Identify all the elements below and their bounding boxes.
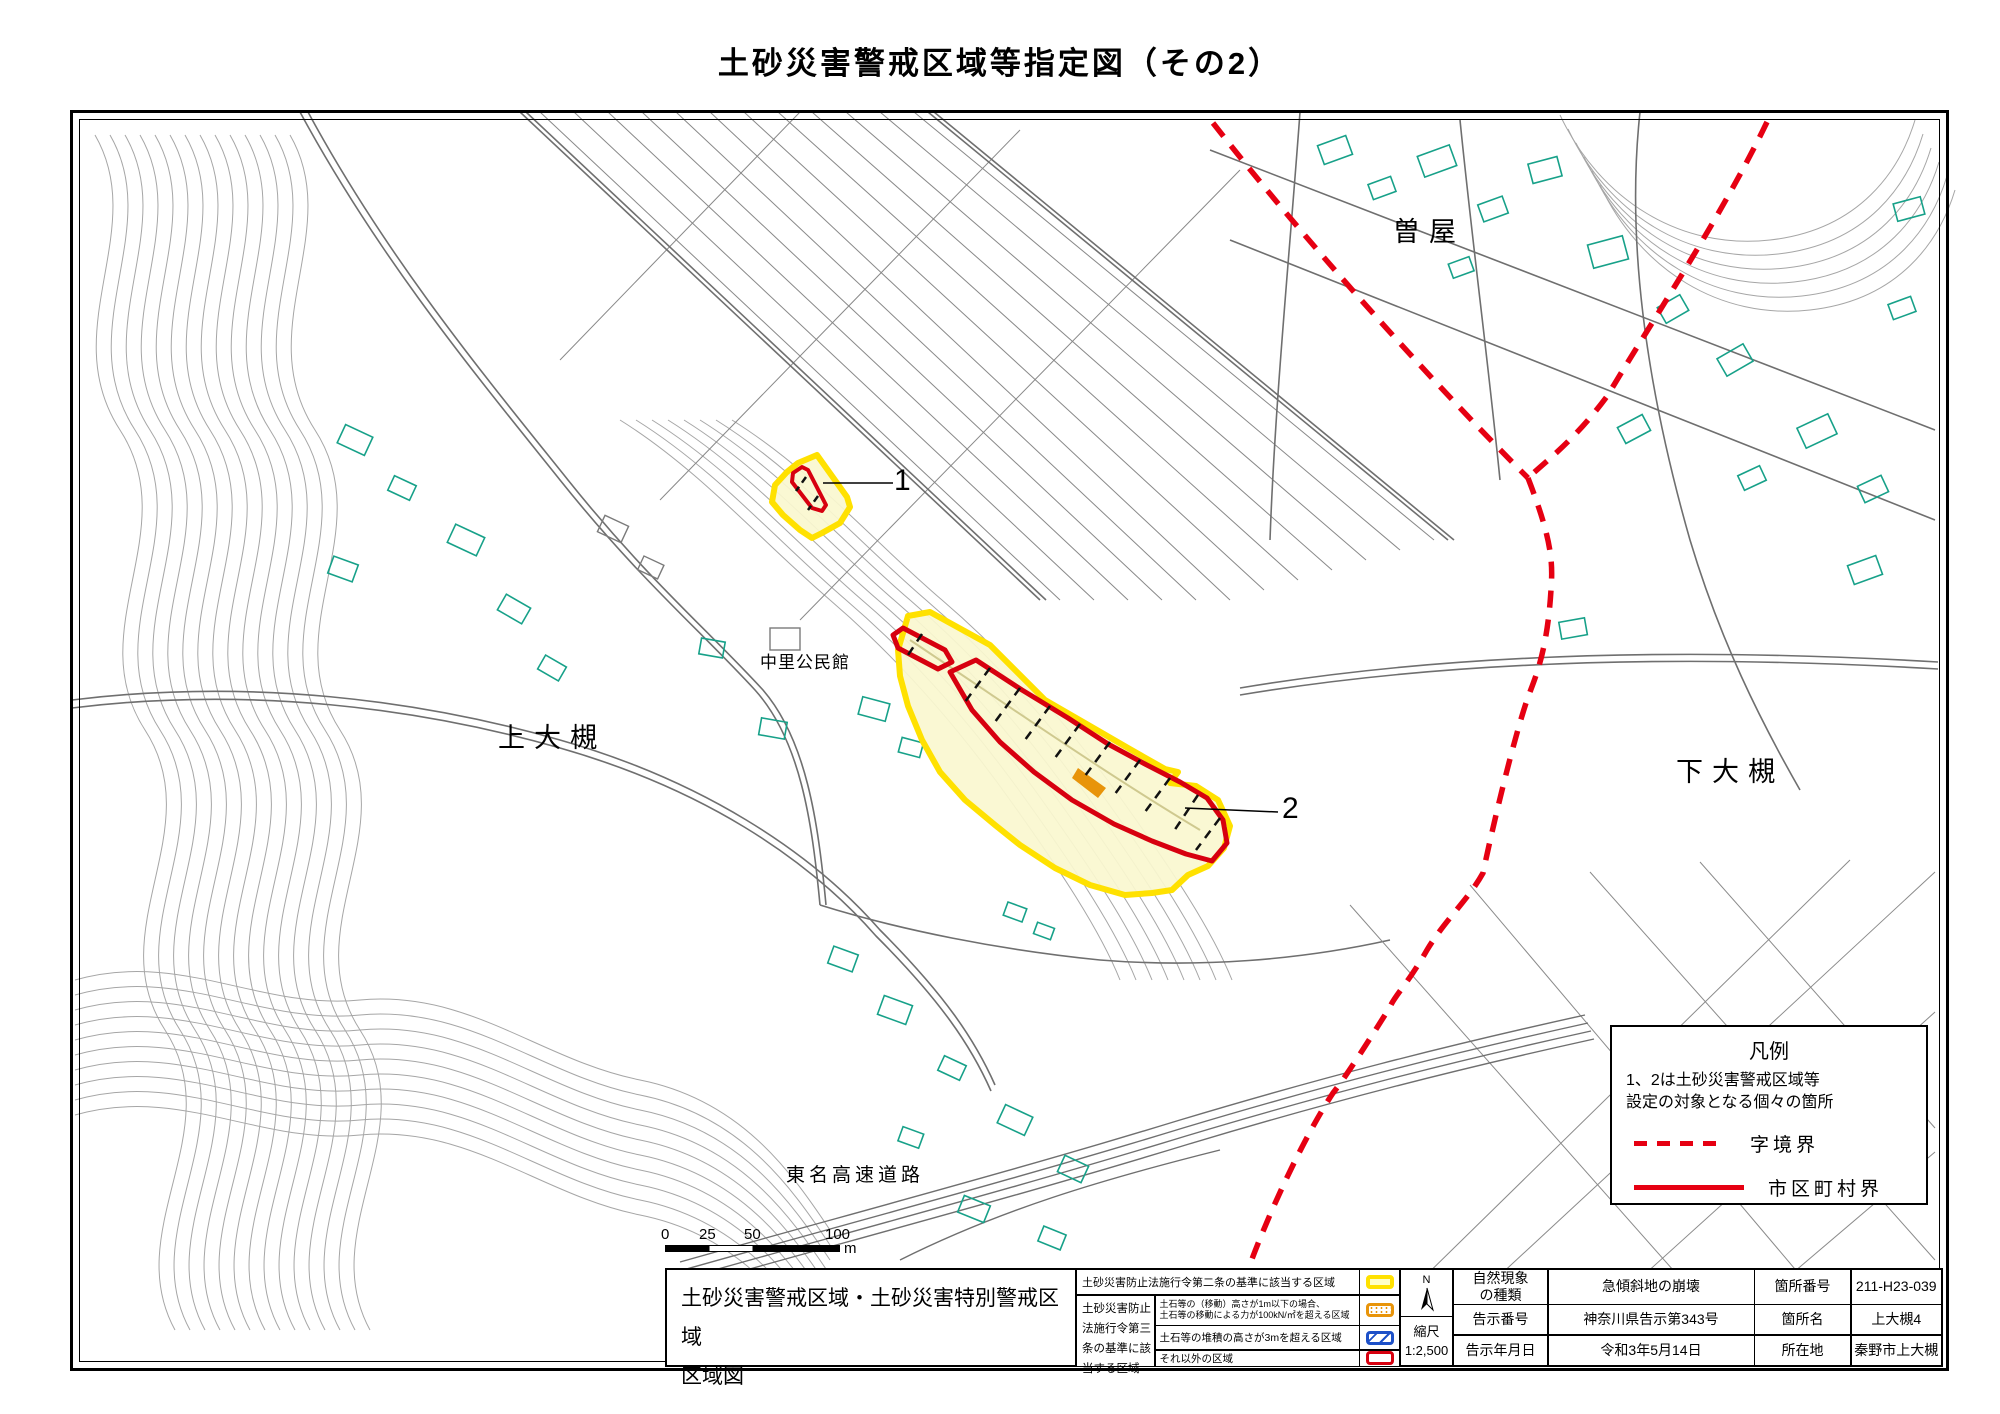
scale-bar-rule	[665, 1245, 840, 1252]
scale-tick-25: 25	[699, 1226, 716, 1243]
red-outline-swatch	[1366, 1351, 1394, 1365]
scale-unit: m	[844, 1240, 857, 1257]
legend-row2-label: 土石等の（移動）高さが1m以下の場合、 土石等の移動による力が100kN/㎡を超…	[1156, 1296, 1359, 1325]
legend-row3-label: 土石等の堆積の高さが3mを超える区域	[1156, 1326, 1359, 1349]
meta-site-name-value: 上大槻4	[1852, 1305, 1942, 1334]
page-title: 土砂災害警戒区域等指定図（その2）	[0, 38, 2000, 83]
solid-boundary-label: 市区町村界	[1768, 1174, 1883, 1201]
north-label: N	[1423, 1275, 1431, 1286]
meta-site-name-label: 箇所名	[1755, 1305, 1850, 1334]
scale-tick-50: 50	[744, 1226, 761, 1243]
scale-tick-0: 0	[661, 1226, 669, 1243]
legend-row4-swatch-cell	[1360, 1351, 1399, 1366]
meta-phenomenon-label: 自然現象 の種類	[1454, 1270, 1547, 1304]
scale-value: 1:2,500	[1405, 1341, 1448, 1361]
legend-row2-line2: 土石等の移動による力が100kN/㎡を超える区域	[1160, 1310, 1350, 1321]
legend-row1-label: 土砂災害防止法施行令第二条の基準に該当する区域	[1077, 1270, 1359, 1294]
place-label-soya: 曽屋	[1393, 210, 1465, 249]
legend-row3-swatch-cell	[1360, 1326, 1399, 1349]
info-table: 土砂災害警戒区域・土砂災害特別警戒区域 区域図 土砂災害防止法施行令第二条の基準…	[665, 1268, 1943, 1367]
zone-marker-1: 1	[894, 464, 911, 498]
legend-row2-line1: 土石等の（移動）高さが1m以下の場合、	[1160, 1299, 1326, 1310]
scale-cell: 縮尺 1:2,500	[1401, 1317, 1452, 1365]
place-label-kami-ootsuki: 上大槻	[498, 716, 606, 755]
north-arrow: N	[1401, 1270, 1452, 1317]
meta-notice-number-value: 神奈川県告示第343号	[1549, 1305, 1754, 1334]
yellow-zone-swatch	[1366, 1275, 1394, 1289]
map-sheet-title-line2: 区域図	[681, 1358, 1061, 1397]
dashed-boundary-label: 字境界	[1750, 1130, 1819, 1157]
meta-phenomenon-value: 急傾斜地の崩壊	[1549, 1270, 1754, 1304]
place-label-nakazato-hall: 中里公民館	[760, 648, 850, 673]
legend-note-line2: 設定の対象となる個々の箇所	[1626, 1092, 1912, 1114]
legend-title: 凡例	[1626, 1035, 1912, 1064]
scale-label: 縮尺	[1413, 1322, 1439, 1342]
legend-row4-label: それ以外の区域	[1156, 1351, 1359, 1366]
meta-notice-number-label: 告示番号	[1454, 1305, 1547, 1334]
solid-boundary-sample	[1634, 1185, 1744, 1190]
meta-notice-date-label: 告示年月日	[1454, 1336, 1547, 1365]
zone-marker-2: 2	[1282, 792, 1299, 826]
map-sheet-title: 土砂災害警戒区域・土砂災害特別警戒区域 区域図	[667, 1270, 1077, 1365]
place-label-shimo-ootsuki: 下大槻	[1676, 750, 1784, 789]
blue-hatched-swatch	[1366, 1331, 1394, 1345]
legend-note-line1: 1、2は土砂災害警戒区域等	[1626, 1070, 1912, 1092]
meta-site-number-value: 211-H23-039	[1852, 1270, 1942, 1304]
meta-table: 自然現象 の種類 急傾斜地の崩壊 箇所番号 211-H23-039 告示番号 神…	[1454, 1270, 1941, 1365]
legend-article3-label: 土砂災害防止法施行令第三条の基準に該当する区域	[1077, 1296, 1154, 1366]
meta-site-number-label: 箇所番号	[1755, 1270, 1850, 1304]
scale-bar: 0 25 50 100 m	[665, 1226, 895, 1262]
meta-phenomenon-label-line2: の種類	[1480, 1287, 1522, 1304]
legend-box: 凡例 1、2は土砂災害警戒区域等 設定の対象となる個々の箇所 字境界 市区町村界	[1610, 1025, 1928, 1205]
place-label-tomei-expressway: 東名高速道路	[786, 1160, 924, 1187]
zone-legend-table: 土砂災害防止法施行令第二条の基準に該当する区域 土砂災害防止法施行令第三条の基準…	[1077, 1270, 1399, 1365]
meta-location-label: 所在地	[1755, 1336, 1850, 1365]
compass-scale-column: N 縮尺 1:2,500	[1399, 1270, 1454, 1365]
orange-dotted-swatch	[1366, 1303, 1394, 1317]
legend-row2-swatch-cell	[1360, 1296, 1399, 1325]
meta-phenomenon-label-line1: 自然現象	[1473, 1270, 1529, 1287]
north-arrow-icon	[1418, 1286, 1436, 1312]
dashed-boundary-sample	[1634, 1141, 1726, 1146]
meta-notice-date-value: 令和3年5月14日	[1549, 1336, 1754, 1365]
map-sheet-title-line1: 土砂災害警戒区域・土砂災害特別警戒区域	[681, 1280, 1061, 1358]
legend-row1-swatch-cell	[1360, 1270, 1399, 1294]
meta-location-value: 秦野市上大槻	[1852, 1336, 1942, 1365]
